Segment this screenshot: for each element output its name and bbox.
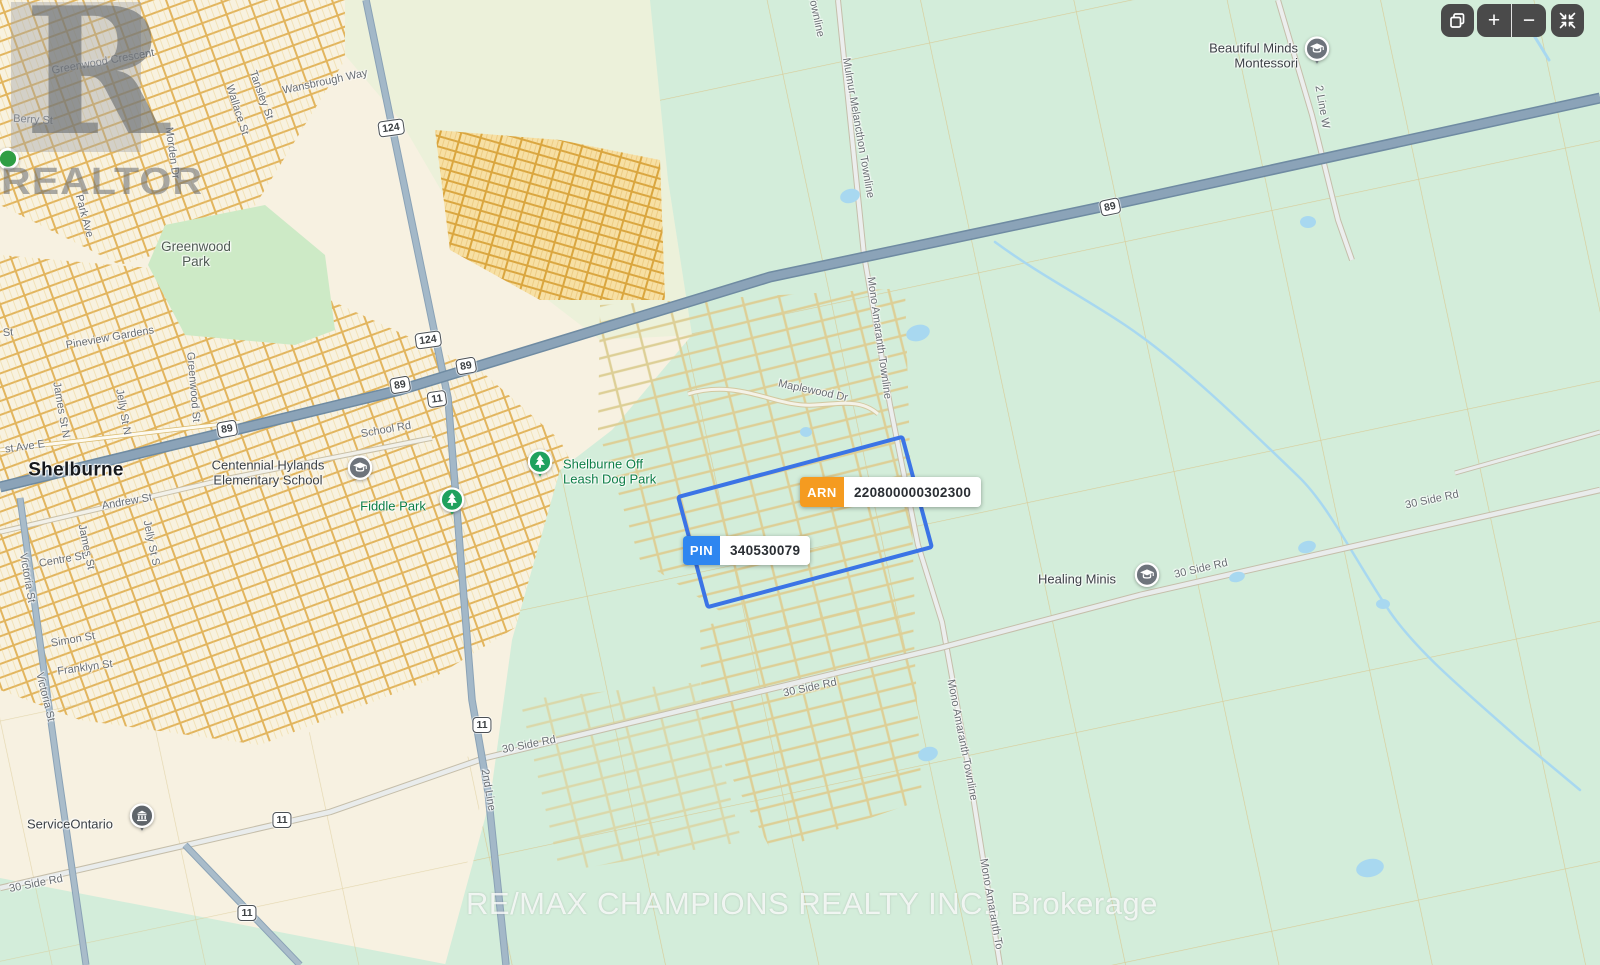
street-label-mulmur-melancthon-townline: Mulmur Melancthon Townline bbox=[840, 57, 877, 199]
street-label-2-line-w: 2 Line W bbox=[1312, 85, 1332, 130]
street-label-30-side-rd: 30 Side Rd bbox=[8, 873, 64, 895]
street-label-wallace-st: Wallace St bbox=[223, 83, 251, 136]
route-shield-89: 89 bbox=[216, 419, 238, 438]
copy-button[interactable] bbox=[1441, 4, 1474, 37]
zoom-in-button[interactable]: + bbox=[1477, 4, 1511, 37]
poi-label-beautiful-minds-montessori[interactable]: Beautiful Minds Montessori bbox=[1209, 41, 1298, 70]
route-shield-89: 89 bbox=[1099, 197, 1122, 217]
street-label-jelly-st-s: Jelly St S bbox=[140, 519, 162, 566]
street-label-30-side-rd: 30 Side Rd bbox=[782, 676, 838, 699]
street-label-victoria-st: Victoria St bbox=[33, 671, 57, 722]
street-label-morden-dr: Morden Dr bbox=[162, 126, 181, 179]
tree-icon-shelburne-off-leash-dog-park[interactable] bbox=[527, 448, 554, 482]
map-canvas[interactable]: Greenwood CrescentBerry StWallace StTans… bbox=[0, 0, 1600, 965]
route-shield-11: 11 bbox=[237, 905, 256, 921]
pin-badge[interactable]: PIN 340530079 bbox=[683, 536, 810, 565]
arn-badge[interactable]: ARN 220800000302300 bbox=[800, 477, 981, 507]
arn-badge-label: ARN bbox=[800, 477, 844, 507]
street-label-james-st-n: James St N bbox=[50, 381, 72, 439]
school-icon-centennial-hylands-elementary-school[interactable] bbox=[347, 454, 374, 488]
pin-badge-label: PIN bbox=[683, 536, 720, 565]
route-shield-89: 89 bbox=[389, 375, 411, 394]
street-label-st-ave-e: st Ave E bbox=[4, 438, 45, 456]
street-label-berry-st: Berry St bbox=[13, 113, 53, 127]
route-shield-124: 124 bbox=[377, 118, 405, 137]
collapse-button[interactable] bbox=[1551, 4, 1584, 37]
street-label-2nd-line: 2nd Line bbox=[478, 768, 497, 812]
poi-label-serviceontario[interactable]: ServiceOntario bbox=[27, 818, 113, 833]
collapse-icon bbox=[1558, 11, 1577, 30]
street-label-mono-amaranth-townline: Mono Amaranth Townline bbox=[864, 276, 893, 400]
pin-badge-value: 340530079 bbox=[720, 536, 810, 565]
street-label-pineview-gardens: Pineview Gardens bbox=[65, 324, 155, 352]
route-shield-11: 11 bbox=[272, 812, 291, 828]
poi-label-greenwood-park: Greenwood Park bbox=[161, 239, 231, 269]
street-label-townline: Townline bbox=[806, 0, 827, 38]
street-label-simon-st: Simon St bbox=[50, 630, 96, 650]
route-shield-89: 89 bbox=[455, 356, 477, 375]
poi-label-shelburne-off-leash-dog-park[interactable]: Shelburne Off Leash Dog Park bbox=[563, 457, 656, 486]
street-label-greenwood-crescent: Greenwood Crescent bbox=[51, 47, 156, 77]
street-label-victoria-st: Victoria St bbox=[17, 552, 38, 603]
street-label-greenwood-st: Greenwood St bbox=[184, 351, 202, 422]
poi-label-healing-minis[interactable]: Healing Minis bbox=[1038, 573, 1116, 588]
street-label-andrew-st: Andrew St bbox=[101, 492, 153, 513]
arn-badge-value: 220800000302300 bbox=[844, 477, 981, 507]
street-label-tansley-st: Tansley St bbox=[247, 69, 276, 121]
poi-label-centennial-hylands-elementary-school[interactable]: Centennial Hylands Elementary School bbox=[212, 458, 325, 487]
street-label-30-side-rd: 30 Side Rd bbox=[501, 734, 557, 756]
street-label-mono-amaranth-townline: Mono Amaranth Townline bbox=[944, 678, 980, 801]
route-shield-11: 11 bbox=[426, 390, 447, 409]
school-icon-healing-minis[interactable] bbox=[1134, 561, 1161, 595]
street-label-wansbrough-way: Wansbrough Way bbox=[281, 67, 368, 97]
zoom-control: + − bbox=[1477, 4, 1546, 37]
street-label-centre-st: Centre St bbox=[38, 550, 86, 570]
poi-label-fiddle-park[interactable]: Fiddle Park bbox=[360, 500, 426, 515]
street-label-st: St bbox=[2, 326, 13, 339]
copy-icon bbox=[1448, 11, 1467, 30]
route-shield-124: 124 bbox=[414, 330, 442, 349]
street-label-james-st: James St bbox=[75, 523, 97, 570]
street-label-30-side-rd: 30 Side Rd bbox=[1404, 488, 1460, 511]
tree-icon-fiddle-park[interactable] bbox=[439, 486, 466, 520]
route-shield-11: 11 bbox=[472, 717, 491, 733]
zoom-out-button[interactable]: − bbox=[1511, 4, 1546, 37]
street-label-franklyn-st: Franklyn St bbox=[57, 658, 114, 678]
school-icon-beautiful-minds-montessori[interactable] bbox=[1304, 35, 1331, 69]
street-label-30-side-rd: 30 Side Rd bbox=[1173, 557, 1229, 581]
street-label-jelly-st-n: Jelly St N bbox=[113, 388, 133, 436]
dot-icon-park-marker[interactable] bbox=[0, 145, 22, 179]
street-label-mono-amaranth-to: Mono Amaranth To bbox=[977, 858, 1005, 951]
building-icon-serviceontario[interactable] bbox=[129, 802, 156, 836]
street-label-maplewood-dr: Maplewood Dr bbox=[777, 378, 849, 405]
street-label-park-ave: Park Ave bbox=[72, 193, 95, 239]
street-label-school-rd: School Rd bbox=[360, 420, 412, 441]
